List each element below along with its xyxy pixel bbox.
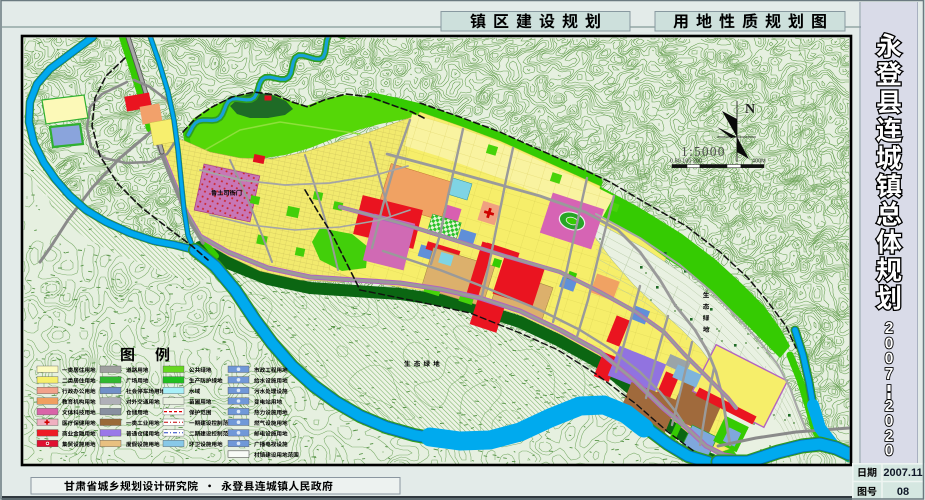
svg-text:N: N — [745, 102, 755, 117]
svg-text:1:5000: 1:5000 — [681, 144, 726, 159]
svg-text:7: 7 — [885, 366, 894, 383]
svg-text:08: 08 — [897, 486, 909, 498]
svg-text:0: 0 — [885, 443, 894, 460]
svg-text:0 50 100 200: 0 50 100 200 — [670, 159, 702, 165]
svg-text:400M: 400M — [752, 159, 766, 165]
svg-text:2007.11: 2007.11 — [883, 467, 922, 479]
